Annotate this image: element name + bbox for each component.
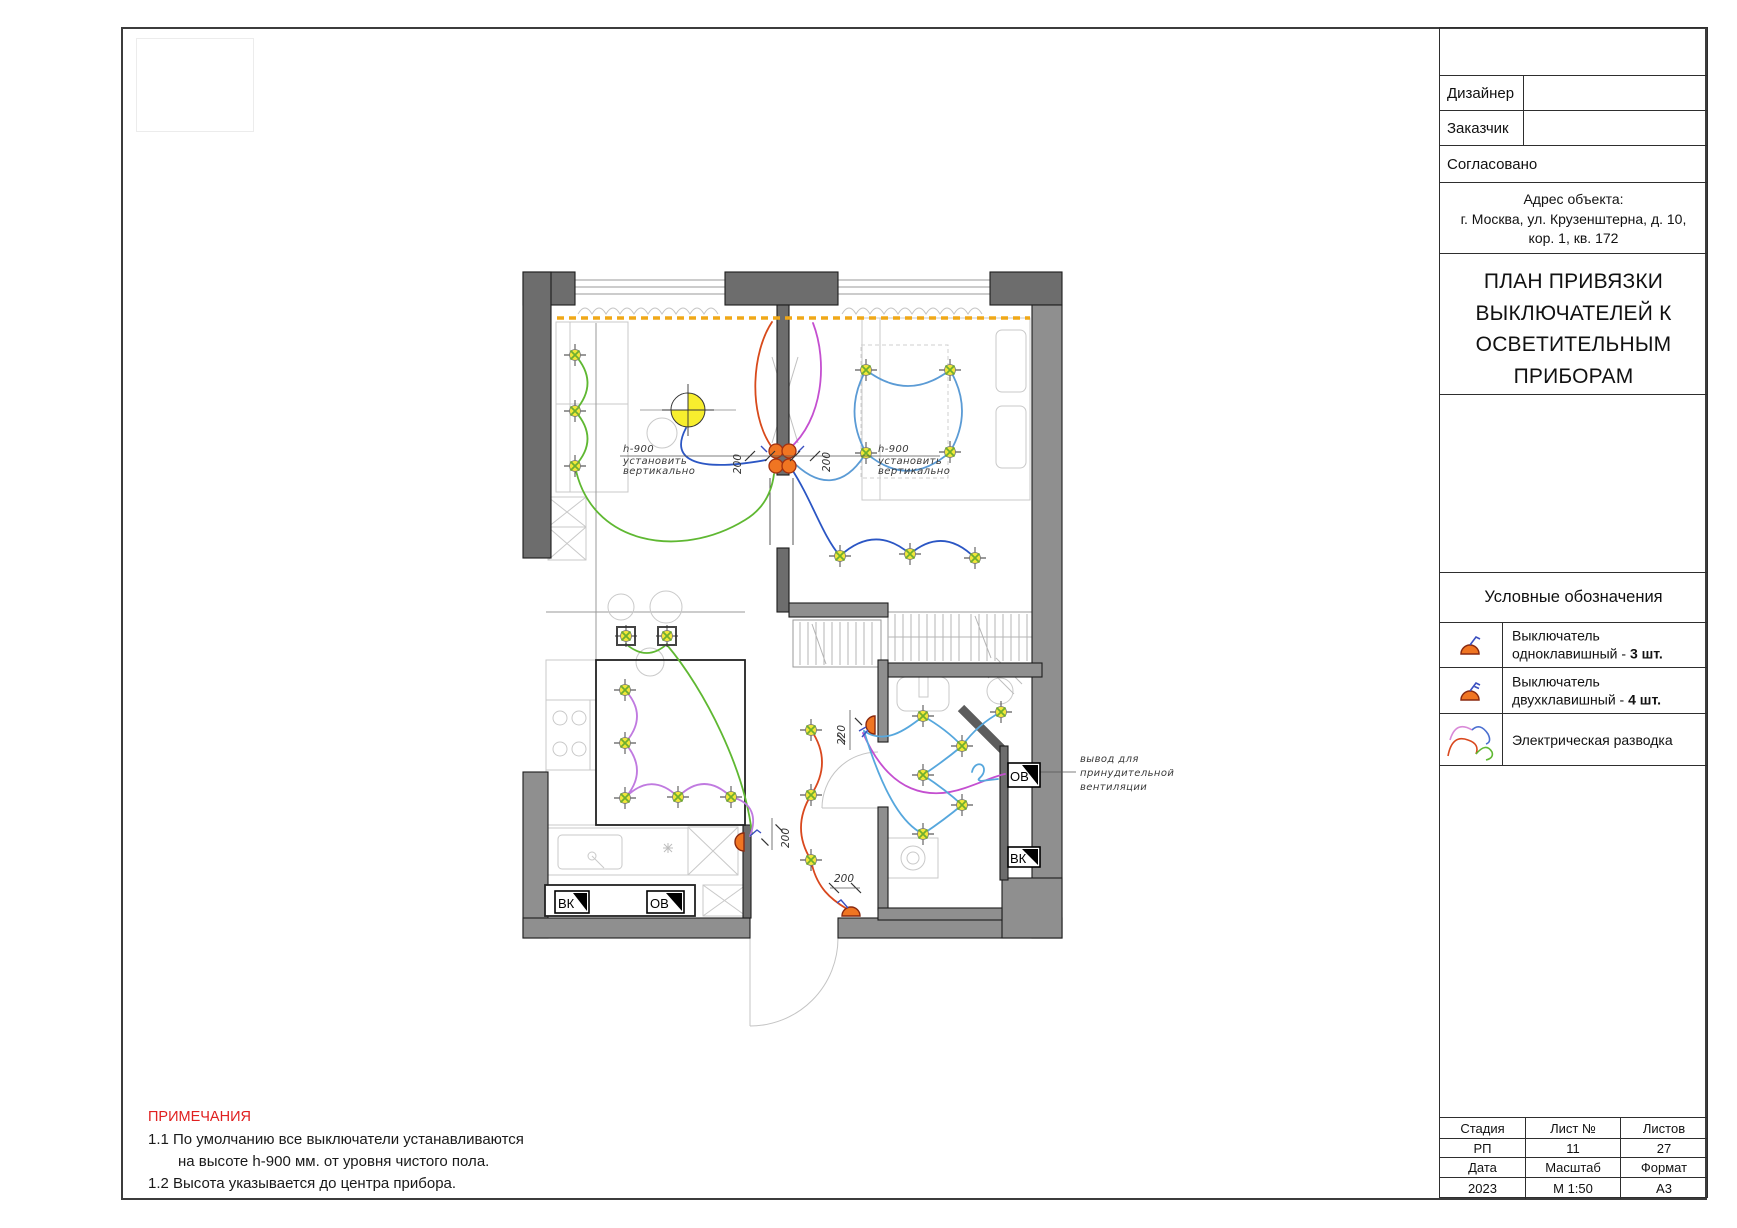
switches-layer xyxy=(735,444,875,916)
date-value: 2023 xyxy=(1440,1178,1526,1199)
entrance-switch xyxy=(837,900,860,916)
wiring-icon xyxy=(1446,718,1496,762)
svg-text:вентиляции: вентиляции xyxy=(1080,782,1147,793)
svg-text:вертикально: вертикально xyxy=(878,466,950,477)
note-line: 1.1 По умолчанию все выключатели устанав… xyxy=(148,1129,524,1151)
ov-box-bottom: ОВ xyxy=(647,891,684,913)
drawing-title-line: ОСВЕТИТЕЛЬНЫМ xyxy=(1440,329,1707,361)
spot-light xyxy=(667,786,689,808)
footer-header-row2: Дата Масштаб Формат xyxy=(1440,1158,1707,1178)
approved-label: Согласовано xyxy=(1447,156,1537,173)
stage-label: Стадия xyxy=(1440,1118,1526,1138)
bathroom-switch xyxy=(859,716,875,737)
drawing-title-line: ПРИБОРАМ xyxy=(1440,361,1707,393)
single-switch-count: 3 шт. xyxy=(1630,646,1663,662)
vk-box-right: ВК xyxy=(1008,847,1040,867)
scale-value: М 1:50 xyxy=(1526,1178,1621,1199)
walls-layer xyxy=(523,272,1062,938)
svg-text:ВК: ВК xyxy=(1010,851,1027,866)
spot-light xyxy=(829,545,851,567)
svg-text:вывод для: вывод для xyxy=(1080,754,1139,765)
legend-item-wiring: Электрическая разводка xyxy=(1440,714,1707,766)
switch-height-note-left: h-900 установить вертикально xyxy=(622,444,695,477)
footer-header-row1: Стадия Лист № Листов xyxy=(1440,1118,1707,1139)
floor-plan: 200 200 220 200 200 h-900 установить вер… xyxy=(460,255,1180,1045)
spot-light xyxy=(855,359,877,381)
svg-text:ВК: ВК xyxy=(558,896,575,911)
spot-light xyxy=(564,455,586,477)
spot-light xyxy=(939,441,961,463)
kitchen-wall-light xyxy=(615,625,637,647)
legend-text-line: Выключатель xyxy=(1512,672,1661,690)
wire-red-circuit xyxy=(755,322,772,446)
dim-200: 200 xyxy=(834,873,854,885)
drawing-title-line: ВЫКЛЮЧАТЕЛЕЙ К xyxy=(1440,298,1707,330)
dim-200: 200 xyxy=(732,454,744,474)
scale-label: Масштаб xyxy=(1526,1158,1621,1177)
svg-text:h-900: h-900 xyxy=(623,444,654,455)
spot-light xyxy=(912,705,934,727)
pendant-light xyxy=(640,384,736,436)
spot-light xyxy=(564,344,586,366)
logo-placeholder xyxy=(136,38,254,132)
designer-label: Дизайнер xyxy=(1440,76,1524,110)
note-line: на высоте h-900 мм. от уровня чистого по… xyxy=(148,1151,524,1173)
format-label: Формат xyxy=(1621,1158,1707,1177)
svg-text:ОВ: ОВ xyxy=(1010,769,1029,784)
svg-text:ОВ: ОВ xyxy=(650,896,669,911)
spot-light xyxy=(614,732,636,754)
switch-height-note-right: h-900 установить вертикально xyxy=(877,444,950,477)
wire-blue-circuit xyxy=(681,428,975,558)
drawing-sheet: Дизайнер Заказчик Согласовано Адрес объе… xyxy=(0,0,1737,1228)
address-heading: Адрес объекта: xyxy=(1440,190,1707,210)
spot-light xyxy=(564,400,586,422)
drawing-title: ПЛАН ПРИВЯЗКИ ВЫКЛЮЧАТЕЛЕЙ К ОСВЕТИТЕЛЬН… xyxy=(1440,254,1707,395)
legend-text-line: Электрическая разводка xyxy=(1512,730,1673,748)
notes-block: ПРИМЕЧАНИЯ 1.1 По умолчанию все выключат… xyxy=(148,1106,524,1195)
svg-text:h-900: h-900 xyxy=(878,444,909,455)
kitchen-wall-light xyxy=(656,625,678,647)
drawing-title-line: ПЛАН ПРИВЯЗКИ xyxy=(1440,266,1707,298)
footer-value-row2: 2023 М 1:50 А3 xyxy=(1440,1178,1707,1199)
legend-heading: Условные обозначения xyxy=(1440,573,1707,623)
notes-heading: ПРИМЕЧАНИЯ xyxy=(148,1106,524,1128)
spot-light xyxy=(800,719,822,741)
spot-light xyxy=(800,849,822,871)
address-line2: кор. 1, кв. 172 xyxy=(1440,229,1707,249)
spot-light xyxy=(855,442,877,464)
address-cell: Адрес объекта: г. Москва, ул. Крузенштер… xyxy=(1440,183,1707,254)
double-switch-icon xyxy=(1453,676,1489,706)
date-label: Дата xyxy=(1440,1158,1526,1177)
empty-cell xyxy=(1440,766,1707,1118)
spot-light xyxy=(939,359,961,381)
spot-light xyxy=(912,764,934,786)
double-switch-count: 4 шт. xyxy=(1628,692,1661,708)
address-line1: г. Москва, ул. Крузенштерна, д. 10, xyxy=(1440,210,1707,230)
spot-light xyxy=(899,543,921,565)
client-label: Заказчик xyxy=(1440,111,1524,145)
svg-text:принудительной: принудительной xyxy=(1080,768,1174,779)
empty-cell xyxy=(1440,395,1707,573)
dim-200: 200 xyxy=(821,452,833,472)
spot-light xyxy=(990,701,1012,723)
spot-light xyxy=(720,786,742,808)
designer-row: Дизайнер xyxy=(1440,76,1707,111)
format-value: А3 xyxy=(1621,1178,1707,1199)
legend-item-double-switch: Выключатель двухклавишный - 4 шт. xyxy=(1440,668,1707,714)
sheets-label: Листов xyxy=(1621,1118,1707,1138)
dim-200: 200 xyxy=(780,828,792,848)
spot-light xyxy=(912,823,934,845)
vk-box-bottom: ВК xyxy=(555,891,589,913)
note-line: 1.2 Высота указывается до центра прибора… xyxy=(148,1173,524,1195)
stage-value: РП xyxy=(1440,1139,1526,1157)
title-block: Дизайнер Заказчик Согласовано Адрес объе… xyxy=(1439,27,1708,1198)
svg-text:вертикально: вертикально xyxy=(623,466,695,477)
footer-value-row1: РП 11 27 xyxy=(1440,1139,1707,1158)
single-switch-icon xyxy=(1453,630,1489,660)
spot-light xyxy=(614,679,636,701)
ov-box-right: ОВ xyxy=(1008,763,1040,787)
approved-row: Согласовано xyxy=(1440,146,1707,183)
spot-light xyxy=(800,784,822,806)
client-row: Заказчик xyxy=(1440,111,1707,146)
sheets-value: 27 xyxy=(1621,1139,1707,1157)
sheet-no-value: 11 xyxy=(1526,1139,1621,1157)
logo-cell xyxy=(1440,28,1707,76)
legend-text-line: Выключатель xyxy=(1512,627,1663,645)
legend-item-single-switch: Выключатель одноклавишный - 3 шт. xyxy=(1440,623,1707,668)
dim-220: 220 xyxy=(836,725,848,745)
sheet-no-label: Лист № xyxy=(1526,1118,1621,1138)
